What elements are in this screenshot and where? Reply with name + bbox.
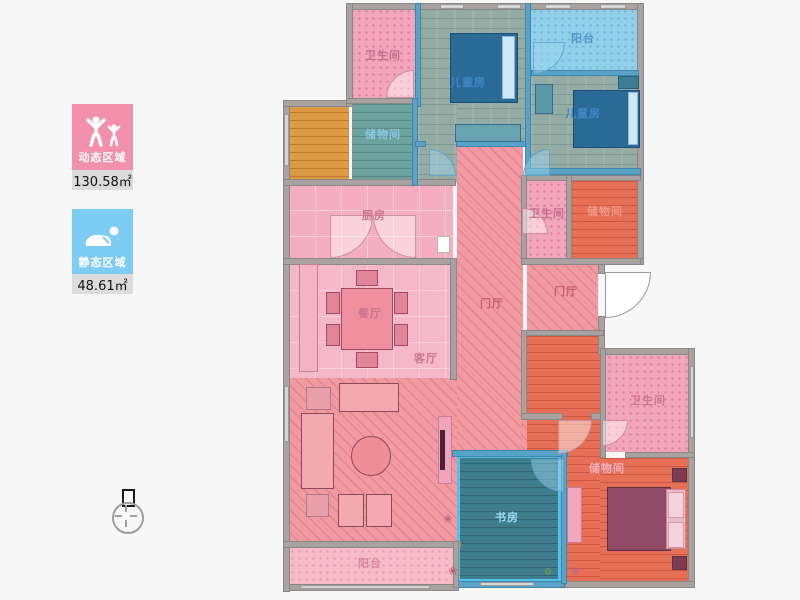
desk[interactable] [535, 84, 553, 114]
room-label-balcony-top: 阳台 [571, 30, 595, 46]
wall [415, 3, 421, 107]
bed-pillow [628, 92, 638, 145]
room-label-storage-mid: 储物间 [587, 203, 623, 219]
room-label-kitchen: 厨房 [362, 207, 386, 223]
room-label-kids-2: 儿童房 [565, 105, 601, 121]
dynamic-area-card: 动态区域 [72, 104, 133, 170]
room-label-bath-mid: 卫生间 [529, 205, 565, 221]
chair[interactable] [394, 324, 408, 346]
room-entry-wood[interactable] [289, 104, 349, 180]
kitchen-fixture[interactable] [437, 236, 450, 253]
plant-icon: ❀ [448, 566, 457, 577]
sleeping-person-icon [81, 224, 125, 254]
window [440, 4, 464, 9]
wall [346, 3, 353, 107]
north-indicator-icon [107, 487, 145, 533]
window [545, 4, 571, 9]
room-label-balcony-bottom: 阳台 [358, 555, 382, 571]
wall [521, 258, 641, 265]
chair[interactable] [394, 292, 408, 314]
chair[interactable] [326, 292, 340, 314]
room-label-kids-1: 儿童房 [450, 74, 486, 90]
wall [283, 100, 290, 592]
window [284, 114, 289, 166]
wall [415, 141, 426, 147]
plant-icon: ❀ [570, 566, 579, 577]
chair[interactable] [356, 270, 378, 286]
room-storage-mid[interactable] [572, 181, 637, 258]
nightstand[interactable] [672, 556, 687, 570]
sofa[interactable] [339, 383, 399, 412]
chair[interactable] [326, 324, 340, 346]
sofa[interactable] [301, 413, 334, 489]
room-label-living: 客厅 [414, 350, 438, 366]
wall [625, 452, 695, 458]
side-table[interactable] [306, 387, 331, 410]
bed[interactable] [607, 487, 671, 551]
tv [440, 430, 445, 470]
wall [283, 179, 456, 186]
wall [525, 3, 531, 181]
wall [346, 98, 418, 104]
nightstand[interactable] [672, 468, 687, 482]
window [480, 582, 534, 586]
bed-pillow [668, 492, 684, 518]
cabinet[interactable] [299, 264, 318, 372]
room-label-storage-top: 储物间 [365, 126, 401, 142]
bed-pillow [502, 36, 515, 99]
window [690, 366, 694, 438]
wall [283, 100, 353, 107]
dynamic-area-label: 动态区域 [79, 149, 127, 165]
room-label-storage-bottom: 储物间 [589, 460, 625, 476]
room-label-foyer-left: 门厅 [480, 295, 504, 311]
room-label-bath-bottom: 卫生间 [630, 392, 666, 408]
room-label-bath-top: 卫生间 [365, 47, 401, 63]
wall [521, 330, 604, 336]
plant-icon: ❀ [443, 514, 452, 525]
people-raising-arms-icon [81, 115, 125, 149]
side-table[interactable] [306, 494, 329, 517]
wall [450, 258, 457, 380]
armchair[interactable] [338, 494, 364, 527]
wall [598, 348, 695, 355]
window [284, 386, 289, 442]
room-label-foyer-right: 门厅 [554, 283, 578, 299]
wall [565, 581, 695, 588]
wall [521, 330, 527, 420]
static-area-card: 静态区域 [72, 209, 133, 275]
window [497, 4, 521, 9]
dresser[interactable] [455, 124, 521, 142]
room-storage-top[interactable] [352, 104, 412, 182]
dynamic-area-value: 130.58㎡ [72, 170, 133, 190]
room-label-dining: 餐厅 [358, 305, 382, 321]
wall [452, 450, 568, 457]
window [300, 585, 430, 589]
armchair[interactable] [366, 494, 392, 527]
chair[interactable] [356, 352, 378, 368]
static-area-label: 静态区域 [79, 254, 127, 270]
window [600, 4, 626, 9]
wall [283, 541, 461, 548]
static-area-value: 48.61㎡ [72, 274, 133, 294]
room-label-study: 书房 [495, 509, 519, 525]
wardrobe[interactable] [618, 76, 639, 89]
plant-icon: ✿ [544, 568, 552, 579]
wardrobe[interactable] [567, 487, 582, 543]
coffee-table[interactable] [351, 436, 391, 476]
entry-door-arc [605, 272, 651, 318]
wall [566, 175, 572, 264]
wall [521, 413, 563, 420]
bed-pillow [668, 522, 684, 548]
